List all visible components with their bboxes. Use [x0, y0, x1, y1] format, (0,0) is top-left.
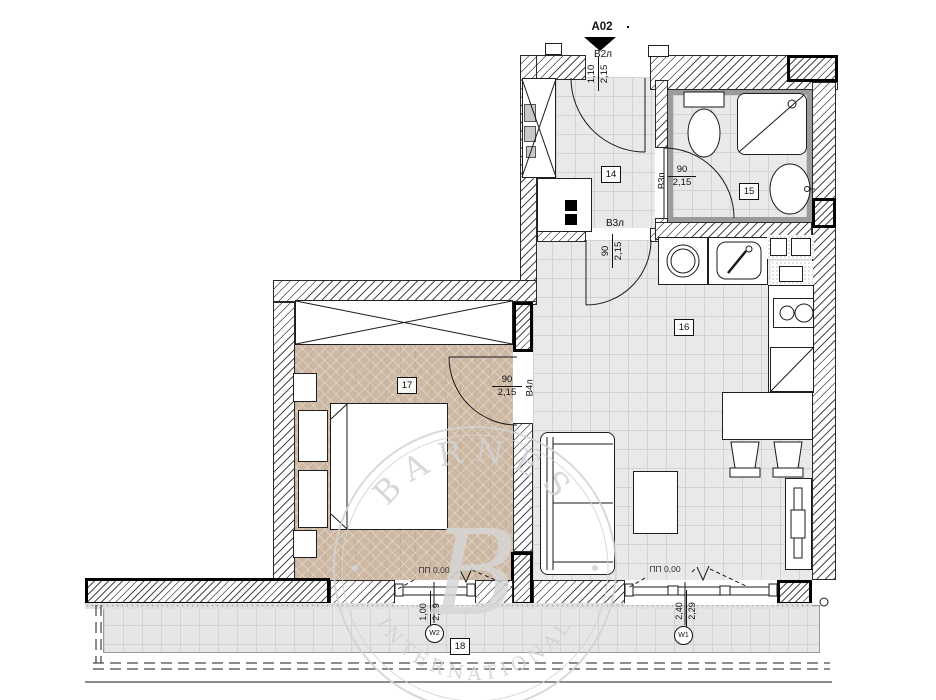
- kitchen-faucet-knob: [746, 246, 752, 252]
- washing-machine-drum-inner: [671, 249, 695, 273]
- toilet-bowl: [688, 109, 720, 157]
- shower-head: [788, 100, 796, 108]
- entry-door-height: 2,15: [600, 65, 610, 84]
- living-door-label: В3л: [600, 219, 630, 229]
- window-living-height: 2,29: [688, 602, 698, 620]
- entrance-code: A02: [585, 22, 619, 34]
- window-living-width: 2,40: [675, 602, 685, 620]
- sill-level-bedroom: ПП 0,00: [413, 566, 455, 575]
- bed-fold-top: [331, 404, 347, 419]
- window-living-mullion-2: [720, 586, 730, 595]
- entry-door-size: 1,10 2,15: [587, 57, 615, 91]
- chair-right: [774, 442, 802, 468]
- bath-door-size: 90 2,15: [668, 165, 696, 189]
- cooktop-burner-small: [780, 306, 794, 320]
- bath-door-width: 90: [677, 165, 688, 175]
- shaft-cross: [522, 79, 556, 177]
- cooktop-burner-large: [795, 304, 813, 322]
- room-number-hall: 14: [601, 166, 621, 183]
- sofa-lines: [547, 437, 613, 570]
- terrace-railing: [93, 605, 830, 669]
- linework-layer: [0, 0, 936, 700]
- bath-door-height: 2,15: [673, 178, 692, 188]
- wardrobe-cross: [296, 301, 512, 344]
- room-number-bedroom: 17: [397, 377, 417, 394]
- tv-mount: [791, 510, 805, 538]
- window-living-glazing: [625, 587, 777, 595]
- bed-fold-bottom: [331, 514, 347, 529]
- room-number-terrace: 18: [450, 638, 470, 655]
- window-bedroom-width: 1,00: [419, 603, 429, 621]
- window-living-tag: W1: [674, 626, 693, 645]
- window-living-size: 2,40 2,29: [675, 590, 701, 632]
- living-door-size: 90 2,15: [601, 234, 629, 268]
- window-living-jamb-r: [769, 584, 777, 596]
- sill-level-living: ПП 0,00: [644, 565, 686, 574]
- window-bedroom-height: 2,29: [432, 603, 442, 621]
- sill-arrow-right: [697, 566, 709, 580]
- window-bedroom-tag: W2: [425, 624, 444, 643]
- shower-diagonal: [739, 95, 804, 152]
- toilet-tank: [684, 92, 724, 107]
- living-door-width: 90: [601, 246, 611, 257]
- floor-plan: A02 В2л 1,10 2,15 В3п 90 2,15 В3л 90 2,1…: [0, 0, 936, 700]
- sill-arrow-left: [460, 568, 472, 582]
- washbasin-tap-dot: [805, 187, 810, 192]
- entrance-dot: [627, 26, 629, 28]
- entry-door-width: 1,10: [587, 65, 597, 84]
- bedroom-door-size: 90 2,15: [492, 375, 522, 399]
- drain: [820, 598, 828, 606]
- window-bedroom-jamb-l: [395, 584, 403, 596]
- bedroom-door-height: 2,15: [498, 388, 517, 398]
- chair-left-seat: [730, 468, 760, 477]
- fridge-diagonal: [770, 347, 814, 392]
- chair-left: [731, 442, 759, 468]
- washing-machine-drum-outer: [667, 245, 699, 277]
- chair-right-seat: [773, 468, 803, 477]
- bedroom-door-width: 90: [502, 375, 513, 385]
- room-number-bath: 15: [739, 183, 759, 200]
- room-number-living: 16: [674, 319, 694, 336]
- bedroom-door-label: В4л: [525, 374, 535, 402]
- window-bedroom-jamb-r: [467, 584, 475, 596]
- bath-door-label: В3п: [657, 167, 667, 195]
- living-door-height: 2,15: [614, 242, 624, 261]
